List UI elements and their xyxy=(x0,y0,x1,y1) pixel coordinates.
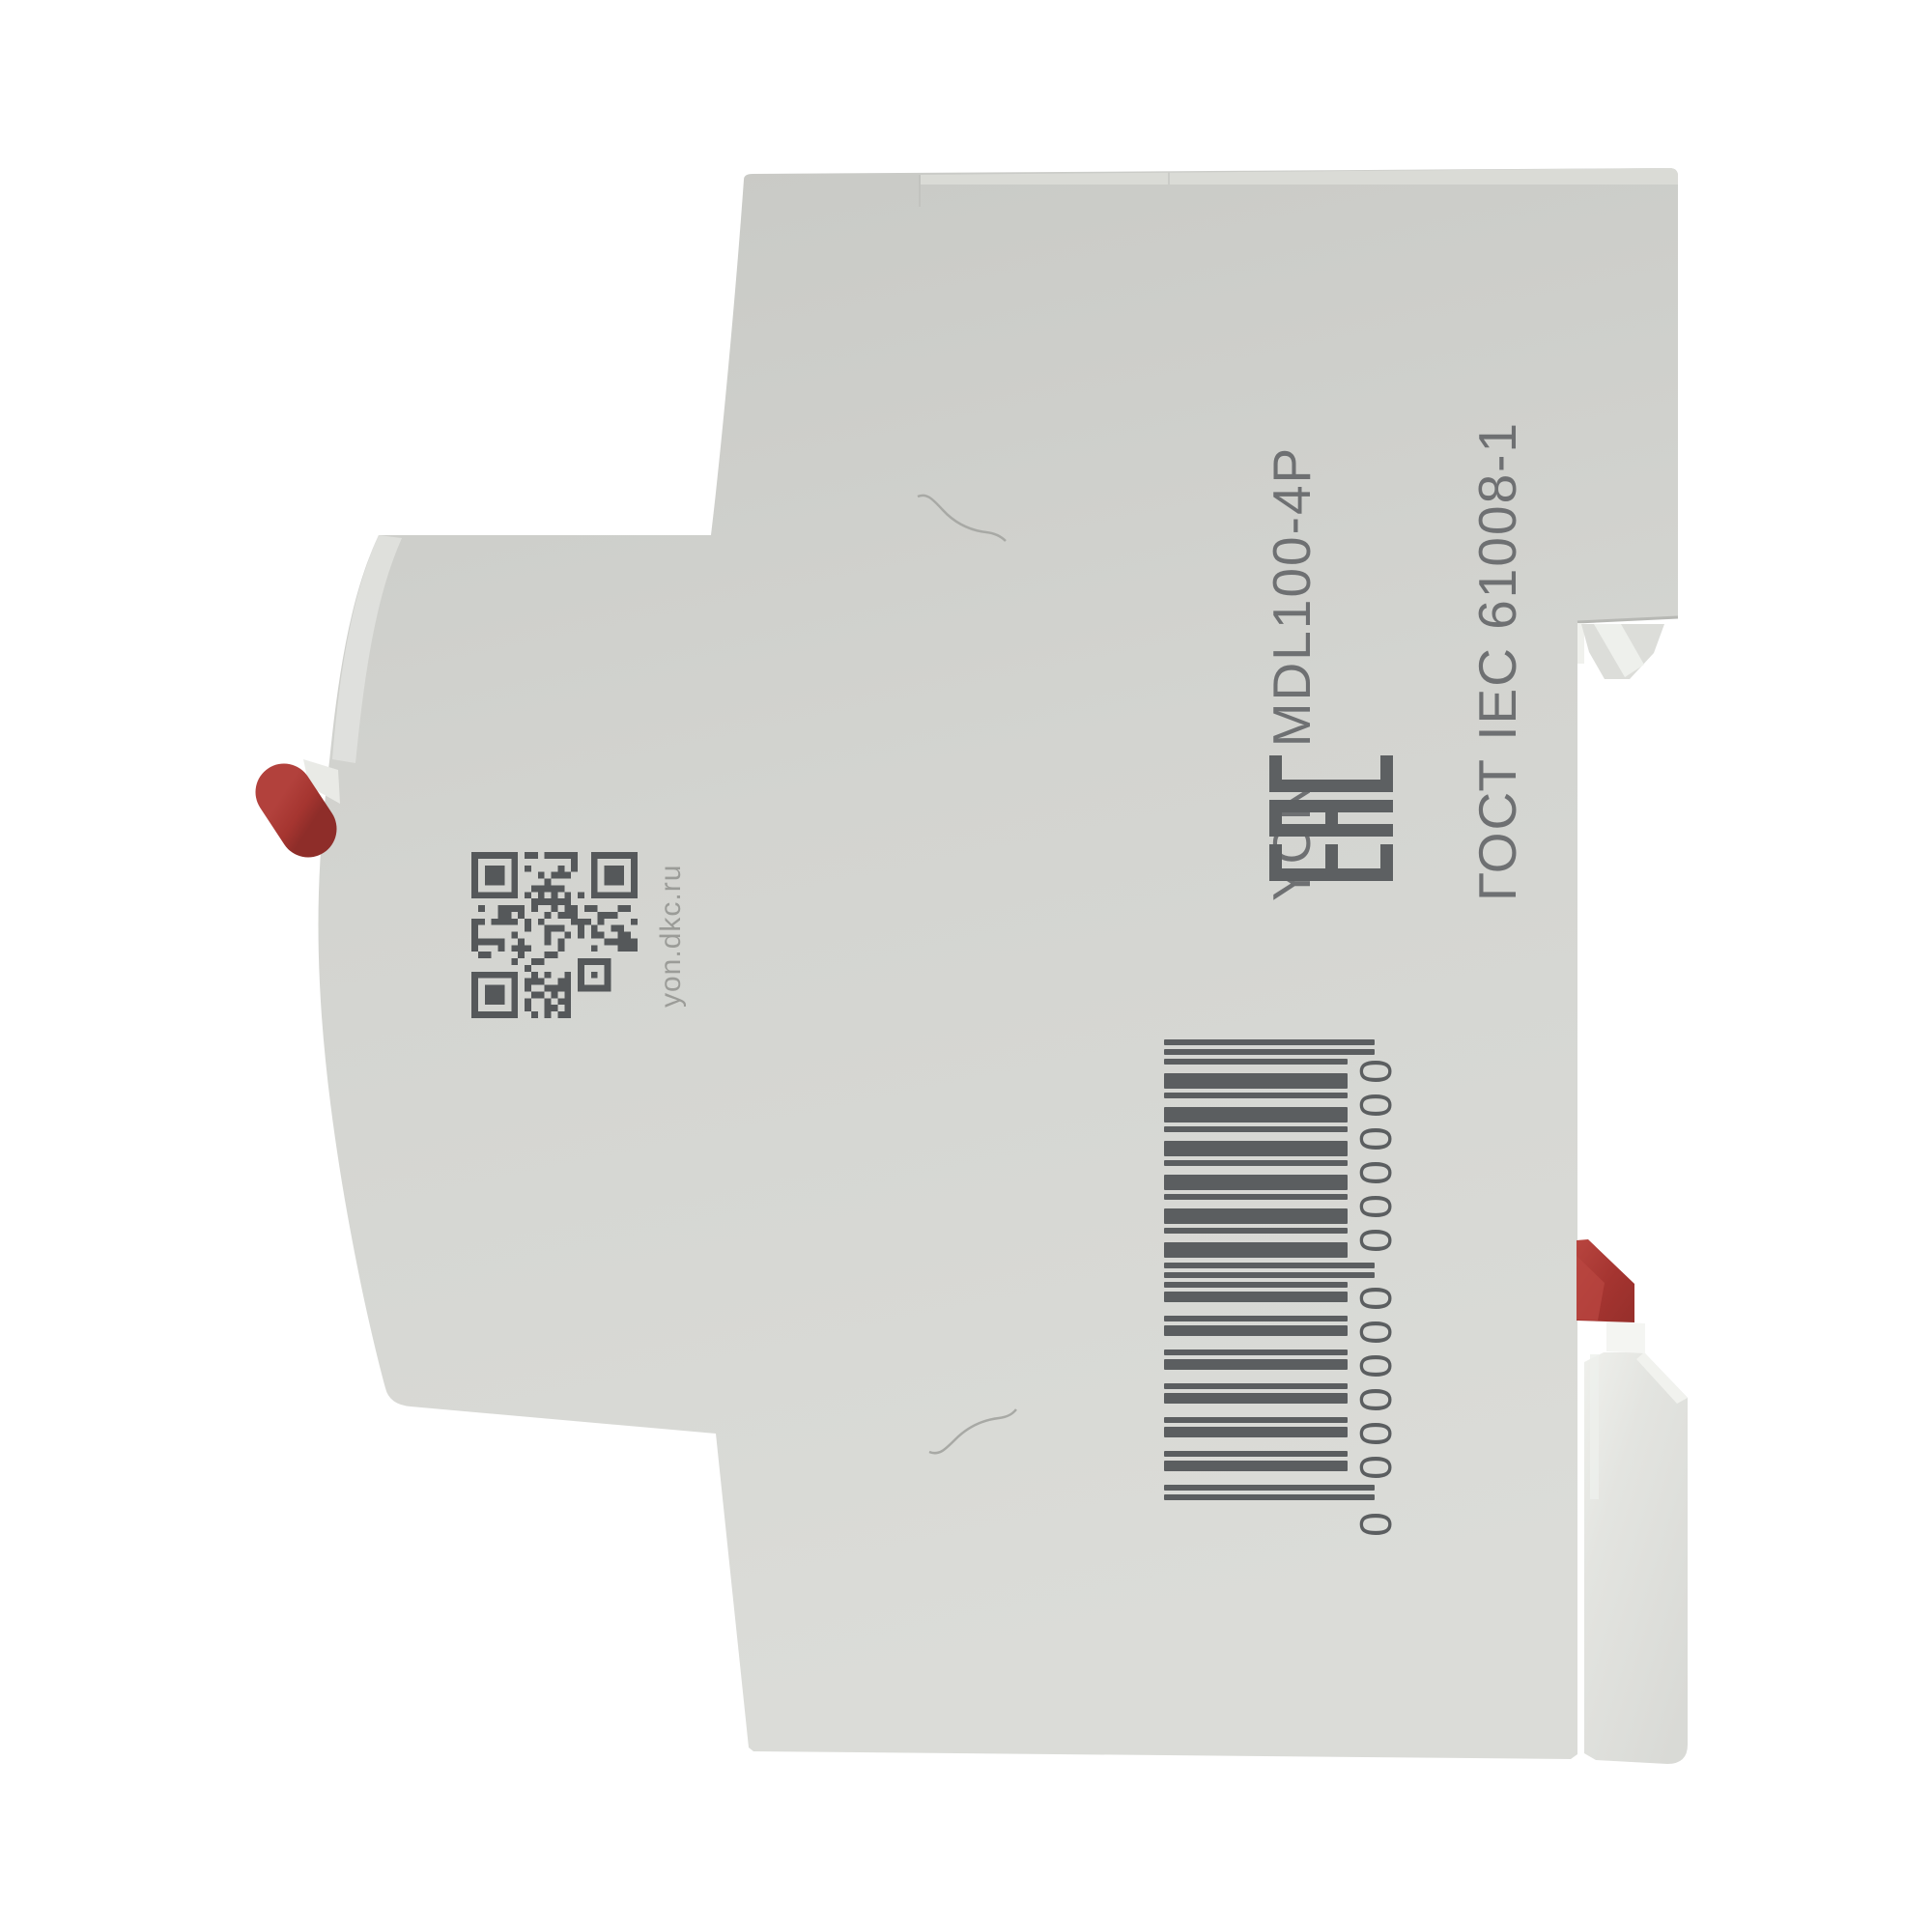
barcode-bar xyxy=(1164,1242,1348,1258)
barcode-bar xyxy=(1164,1292,1348,1302)
barcode-bar xyxy=(1164,1282,1348,1288)
barcode-bar xyxy=(1164,1325,1348,1336)
barcode-bar xyxy=(1164,1228,1348,1234)
barcode-digit: 0 xyxy=(1350,1320,1402,1345)
barcode-digit: 0 xyxy=(1350,1456,1402,1481)
barcode-digit: 0 xyxy=(1350,1059,1402,1084)
barcode-bar xyxy=(1164,1073,1348,1089)
barcode-digit: 0 xyxy=(1350,1093,1402,1118)
barcode-bar xyxy=(1164,1141,1348,1156)
barcode-digit: 0 xyxy=(1350,1194,1402,1219)
qr-code-graphic xyxy=(471,852,638,1018)
barcode-digit: 0 xyxy=(1350,1160,1402,1185)
barcode-bar xyxy=(1164,1427,1348,1437)
qr-code xyxy=(471,852,638,1018)
product-photo: YON MDL100-4P ГОСТ IEC 61008-1 xyxy=(0,0,1932,1932)
barcode-bar xyxy=(1164,1451,1348,1457)
barcode-bar xyxy=(1164,1039,1375,1045)
toggle-lever xyxy=(284,792,308,829)
barcode-bar xyxy=(1164,1350,1348,1355)
barcode-digit: 0 xyxy=(1350,1228,1402,1253)
eac-mark xyxy=(1269,755,1395,881)
rear-block-groove xyxy=(1590,1354,1599,1499)
barcode-bar xyxy=(1164,1383,1348,1389)
breaker-side-view xyxy=(0,0,1932,1932)
barcode-bar xyxy=(1164,1316,1348,1321)
barcode-digit: 0 xyxy=(1350,1286,1402,1311)
barcode-bar xyxy=(1164,1093,1348,1098)
eac-logo-icon xyxy=(1269,755,1395,881)
barcode-bar xyxy=(1164,1059,1348,1065)
barcode-digit: 0 xyxy=(1350,1422,1402,1447)
barcode-digit: 0 xyxy=(1350,1126,1402,1151)
product-standard-text: ГОСТ IEC 61008-1 xyxy=(1463,447,1532,901)
barcode-digit: 0 xyxy=(1350,1512,1402,1537)
barcode-bar xyxy=(1164,1107,1348,1122)
product-label: YON MDL100-4P ГОСТ IEC 61008-1 xyxy=(1121,447,1258,901)
barcode-bar xyxy=(1164,1208,1348,1224)
rear-bottom-block xyxy=(1584,1352,1688,1764)
barcode-digit: 0 xyxy=(1350,1387,1402,1412)
barcode-bar xyxy=(1164,1272,1375,1278)
barcode-bar xyxy=(1164,1175,1348,1190)
barcode: 0000000000000 xyxy=(1164,1039,1401,1551)
barcode-bar xyxy=(1164,1359,1348,1370)
barcode-bar xyxy=(1164,1461,1348,1471)
barcode-bar xyxy=(1164,1485,1375,1491)
barcode-digit: 0 xyxy=(1350,1353,1402,1378)
barcode-bar xyxy=(1164,1263,1375,1268)
barcode-bar xyxy=(1164,1160,1348,1166)
barcode-bar xyxy=(1164,1126,1348,1132)
barcode-bar xyxy=(1164,1194,1348,1200)
din-latch-tab xyxy=(1606,1321,1645,1353)
barcode-bar xyxy=(1164,1494,1375,1500)
barcode-bar xyxy=(1164,1393,1348,1404)
barcode-bar xyxy=(1164,1049,1375,1055)
barcode-bar xyxy=(1164,1417,1348,1423)
qr-caption: yon.dkc.ru xyxy=(655,853,688,1008)
